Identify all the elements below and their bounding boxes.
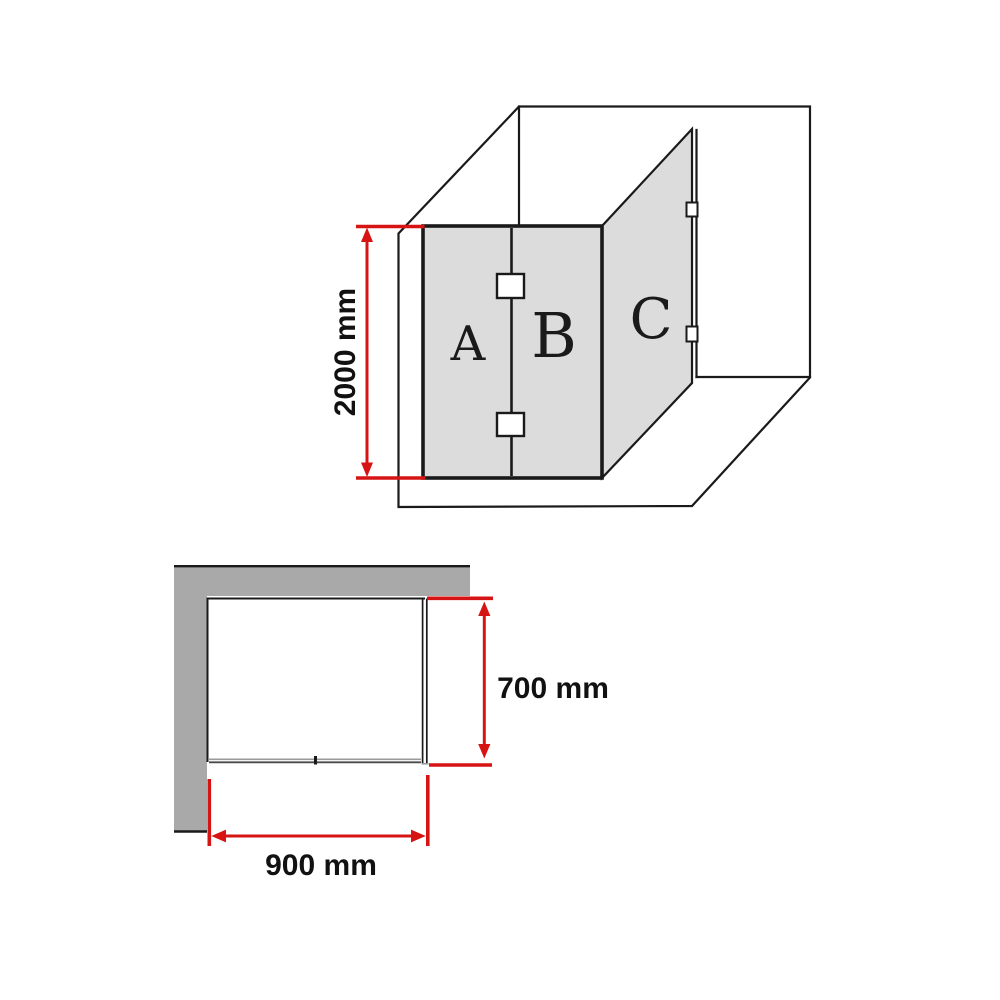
shower-screen-diagram: A B C 2000 mm [0,0,1000,1000]
height-dim-arrowhead-up [361,228,373,243]
plan-wall-top [174,565,470,596]
return-dim-arrowhead-up [478,602,490,617]
wall-bracket-bottom [687,327,698,342]
height-dim-label: 2000 mm [329,288,362,416]
hinge-top [497,274,524,298]
perspective-view: A B C 2000 mm [329,107,810,508]
page-background: A B C 2000 mm [0,0,1000,1000]
hinge-bottom [497,413,524,436]
height-dim-arrowhead-down [361,463,373,478]
plan-wall-left [174,565,207,832]
front-dim-label: 900 mm [265,849,377,882]
return-dim-label: 700 mm [497,672,609,705]
height-dimension: 2000 mm [329,227,426,479]
front-dimension: 900 mm [209,775,427,882]
panel-c-label: C [630,287,673,352]
front-dim-arrowhead-right [411,830,426,843]
plan-view: 700 mm 900 mm [174,565,609,882]
return-dimension: 700 mm [427,598,609,765]
panel-b-label: B [531,299,577,372]
panel-a-label: A [450,316,487,372]
wall-bracket-top [687,203,698,217]
front-dim-arrowhead-left [211,830,226,843]
return-dim-arrowhead-down [478,744,490,759]
